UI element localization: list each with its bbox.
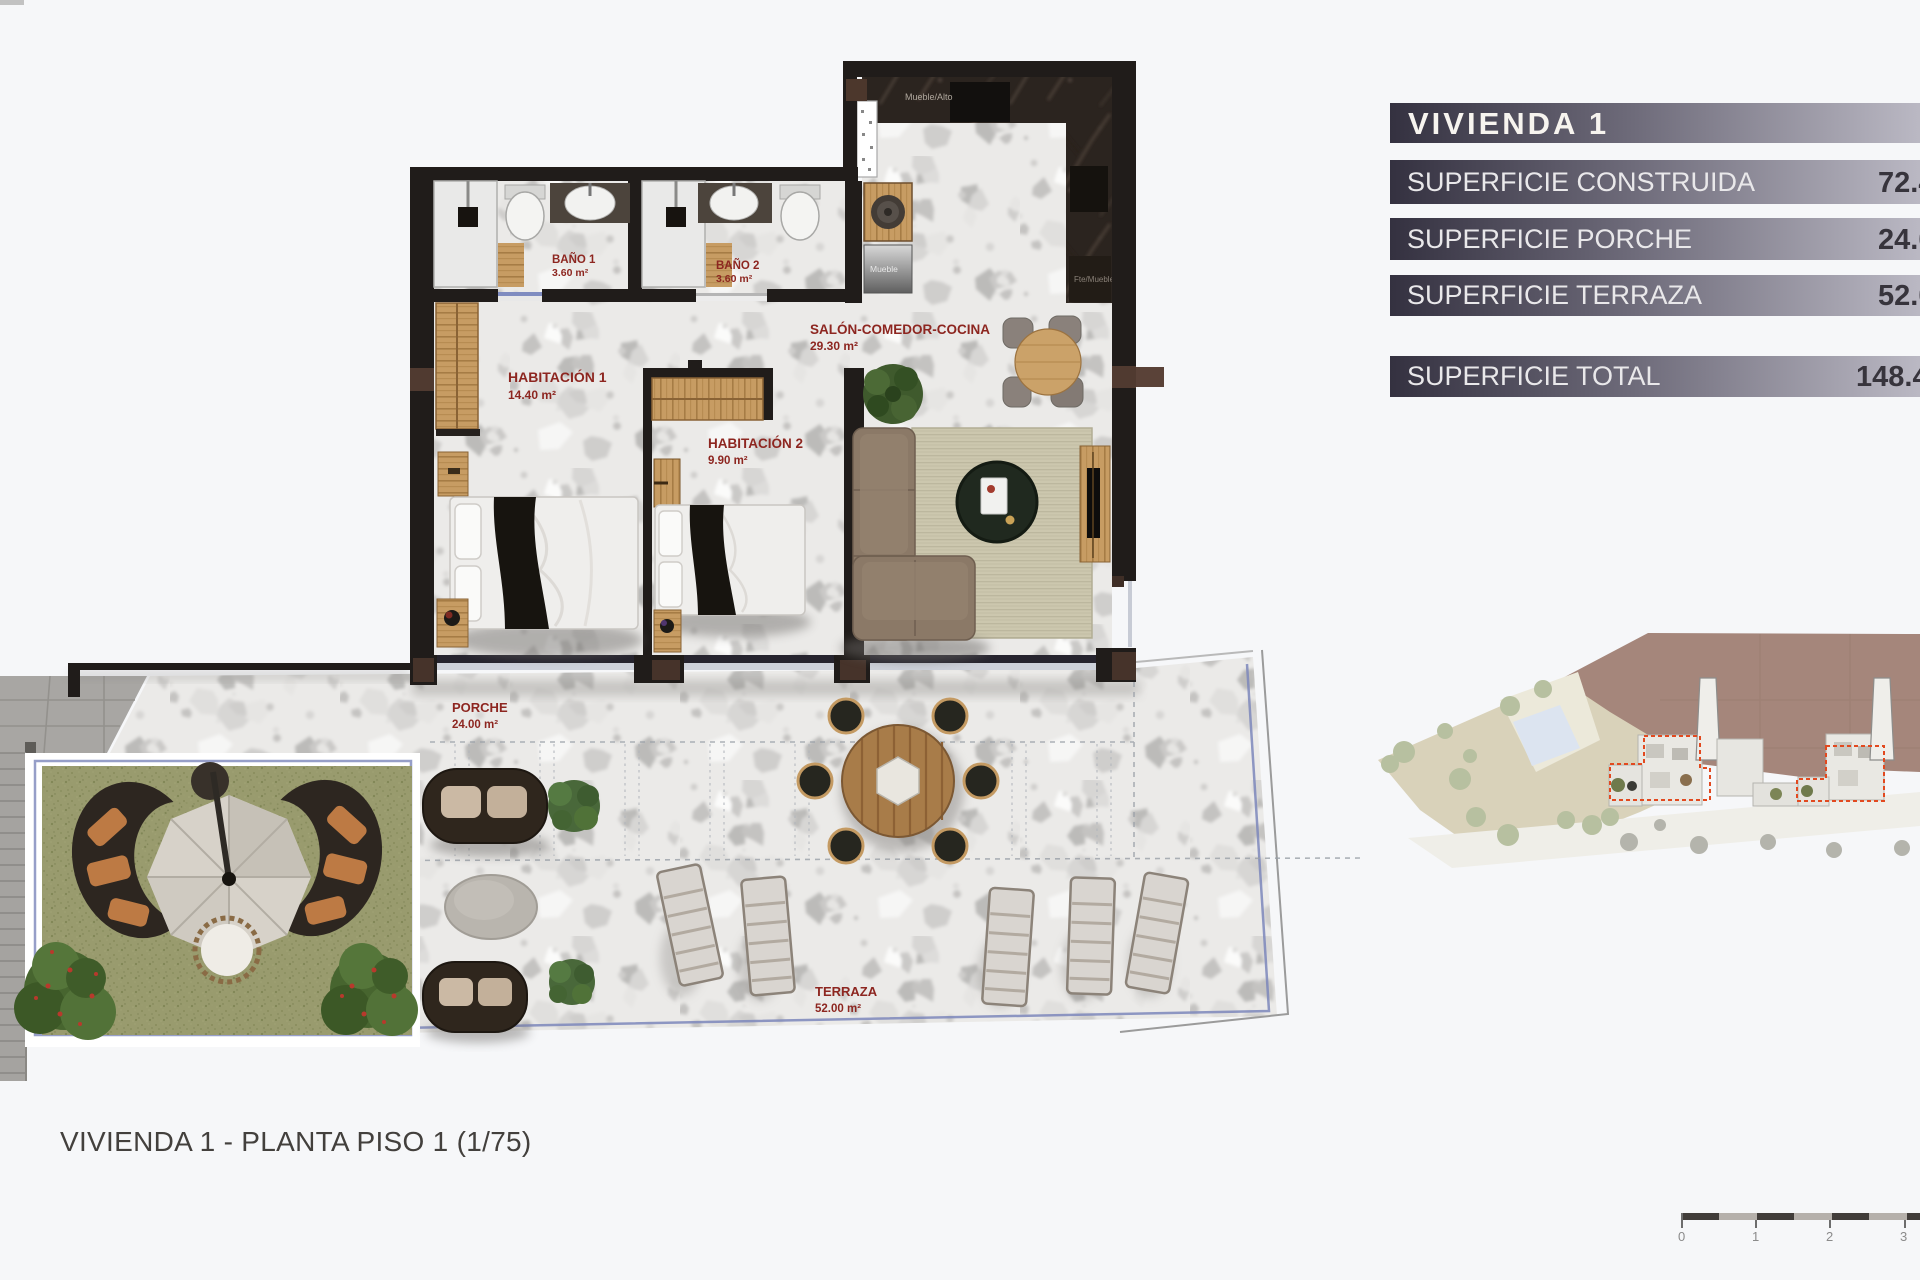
- svg-text:SUPERFICIE CONSTRUIDA: SUPERFICIE CONSTRUIDA: [1407, 167, 1755, 197]
- svg-text:2: 2: [1826, 1229, 1833, 1244]
- svg-text:0: 0: [1678, 1229, 1685, 1244]
- svg-text:9.90 m²: 9.90 m²: [708, 455, 748, 467]
- svg-text:BAÑO 2: BAÑO 2: [716, 259, 759, 272]
- svg-text:SUPERFICIE TOTAL: SUPERFICIE TOTAL: [1407, 361, 1661, 391]
- svg-text:SALÓN-COMEDOR-COCINA: SALÓN-COMEDOR-COCINA: [810, 322, 990, 337]
- svg-text:SUPERFICIE PORCHE: SUPERFICIE PORCHE: [1407, 224, 1692, 254]
- svg-text:3.60 m²: 3.60 m²: [552, 267, 589, 279]
- svg-text:24.00 m²: 24.00 m²: [452, 719, 498, 731]
- svg-text:TERRAZA: TERRAZA: [815, 984, 878, 999]
- svg-text:3: 3: [1900, 1229, 1907, 1244]
- svg-text:Mueble/Alto: Mueble/Alto: [905, 92, 953, 102]
- svg-text:52.00 m²: 52.00 m²: [815, 1003, 861, 1015]
- svg-text:SUPERFICIE TERRAZA: SUPERFICIE TERRAZA: [1407, 280, 1702, 310]
- svg-text:HABITACIÓN 1: HABITACIÓN 1: [508, 368, 607, 385]
- svg-text:Fte/Mueble: Fte/Mueble: [1074, 275, 1115, 284]
- svg-text:BAÑO 1: BAÑO 1: [552, 253, 596, 266]
- svg-text:24.0: 24.0: [1878, 224, 1920, 256]
- svg-text:Mueble: Mueble: [870, 264, 898, 274]
- svg-text:VIVIENDA 1 - PLANTA PISO 1 (1/: VIVIENDA 1 - PLANTA PISO 1 (1/75): [60, 1126, 532, 1157]
- svg-text:148.4: 148.4: [1856, 361, 1920, 393]
- svg-text:14.40 m²: 14.40 m²: [508, 388, 556, 402]
- svg-text:HABITACIÓN 2: HABITACIÓN 2: [708, 436, 803, 451]
- svg-text:3.60 m²: 3.60 m²: [716, 273, 753, 285]
- svg-text:52.0: 52.0: [1878, 280, 1920, 312]
- svg-text:1: 1: [1752, 1229, 1759, 1244]
- svg-text:VIVIENDA 1: VIVIENDA 1: [1408, 106, 1609, 141]
- svg-text:29.30 m²: 29.30 m²: [810, 339, 858, 353]
- svg-text:72.4: 72.4: [1878, 167, 1920, 199]
- svg-text:PORCHE: PORCHE: [452, 700, 508, 715]
